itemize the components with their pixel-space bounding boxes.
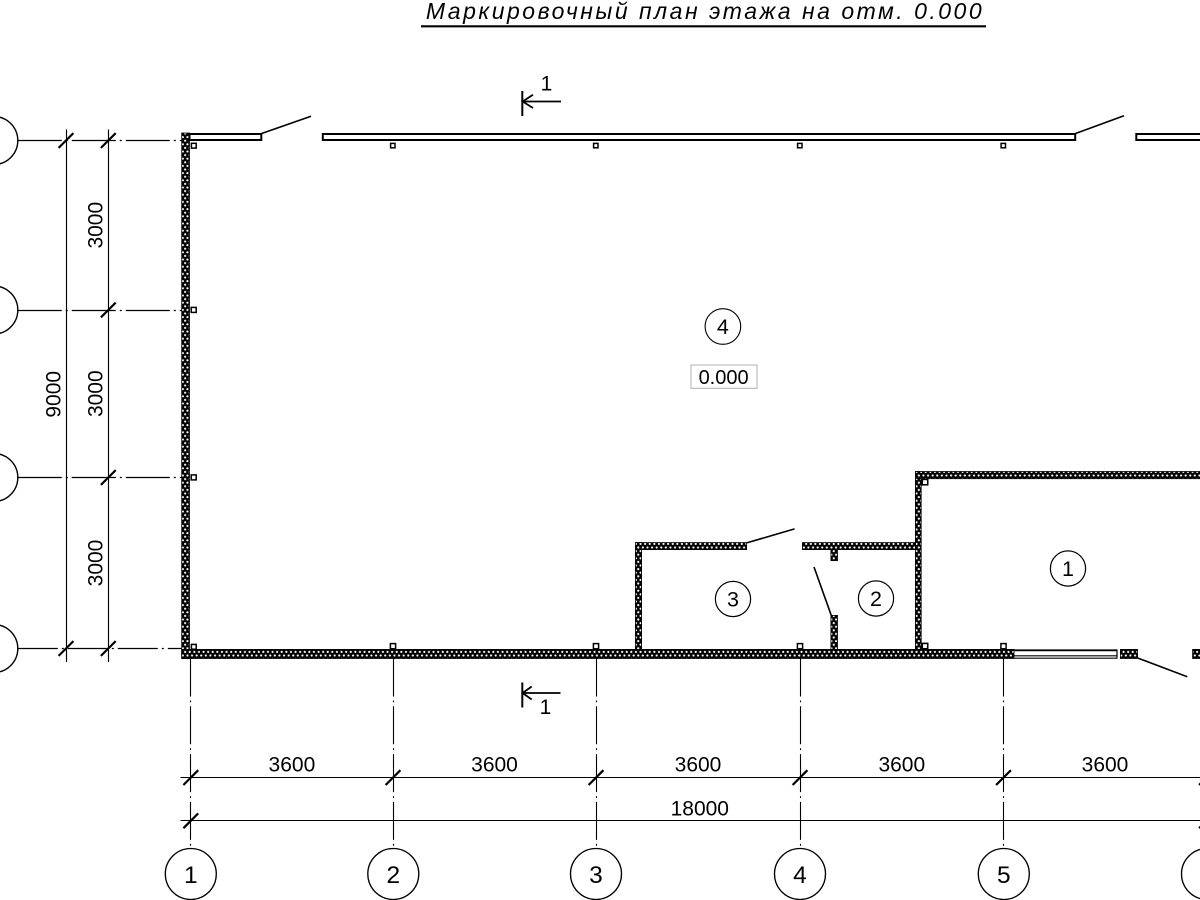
svg-text:3000: 3000 (85, 540, 108, 587)
svg-text:3: 3 (589, 862, 603, 889)
svg-text:3600: 3600 (471, 754, 518, 777)
svg-text:3000: 3000 (85, 202, 108, 249)
svg-text:Маркировочный план этажа на от: Маркировочный план этажа на отм. 0.000 (426, 0, 984, 24)
svg-text:1: 1 (540, 696, 552, 719)
svg-text:2: 2 (870, 587, 882, 611)
svg-text:18000: 18000 (671, 797, 729, 820)
svg-text:3: 3 (727, 588, 739, 612)
svg-text:0.000: 0.000 (699, 367, 749, 389)
svg-text:3600: 3600 (878, 754, 925, 777)
svg-text:3600: 3600 (675, 754, 722, 777)
svg-text:3000: 3000 (85, 370, 108, 417)
svg-text:9000: 9000 (43, 371, 66, 418)
svg-text:3600: 3600 (269, 754, 316, 777)
svg-text:5: 5 (997, 862, 1011, 889)
svg-text:1: 1 (184, 862, 198, 889)
svg-text:4: 4 (717, 315, 729, 339)
svg-text:4: 4 (793, 862, 807, 889)
svg-text:2: 2 (386, 862, 400, 889)
svg-text:1: 1 (541, 73, 553, 96)
svg-text:1: 1 (1062, 557, 1074, 581)
svg-text:3600: 3600 (1082, 754, 1129, 777)
